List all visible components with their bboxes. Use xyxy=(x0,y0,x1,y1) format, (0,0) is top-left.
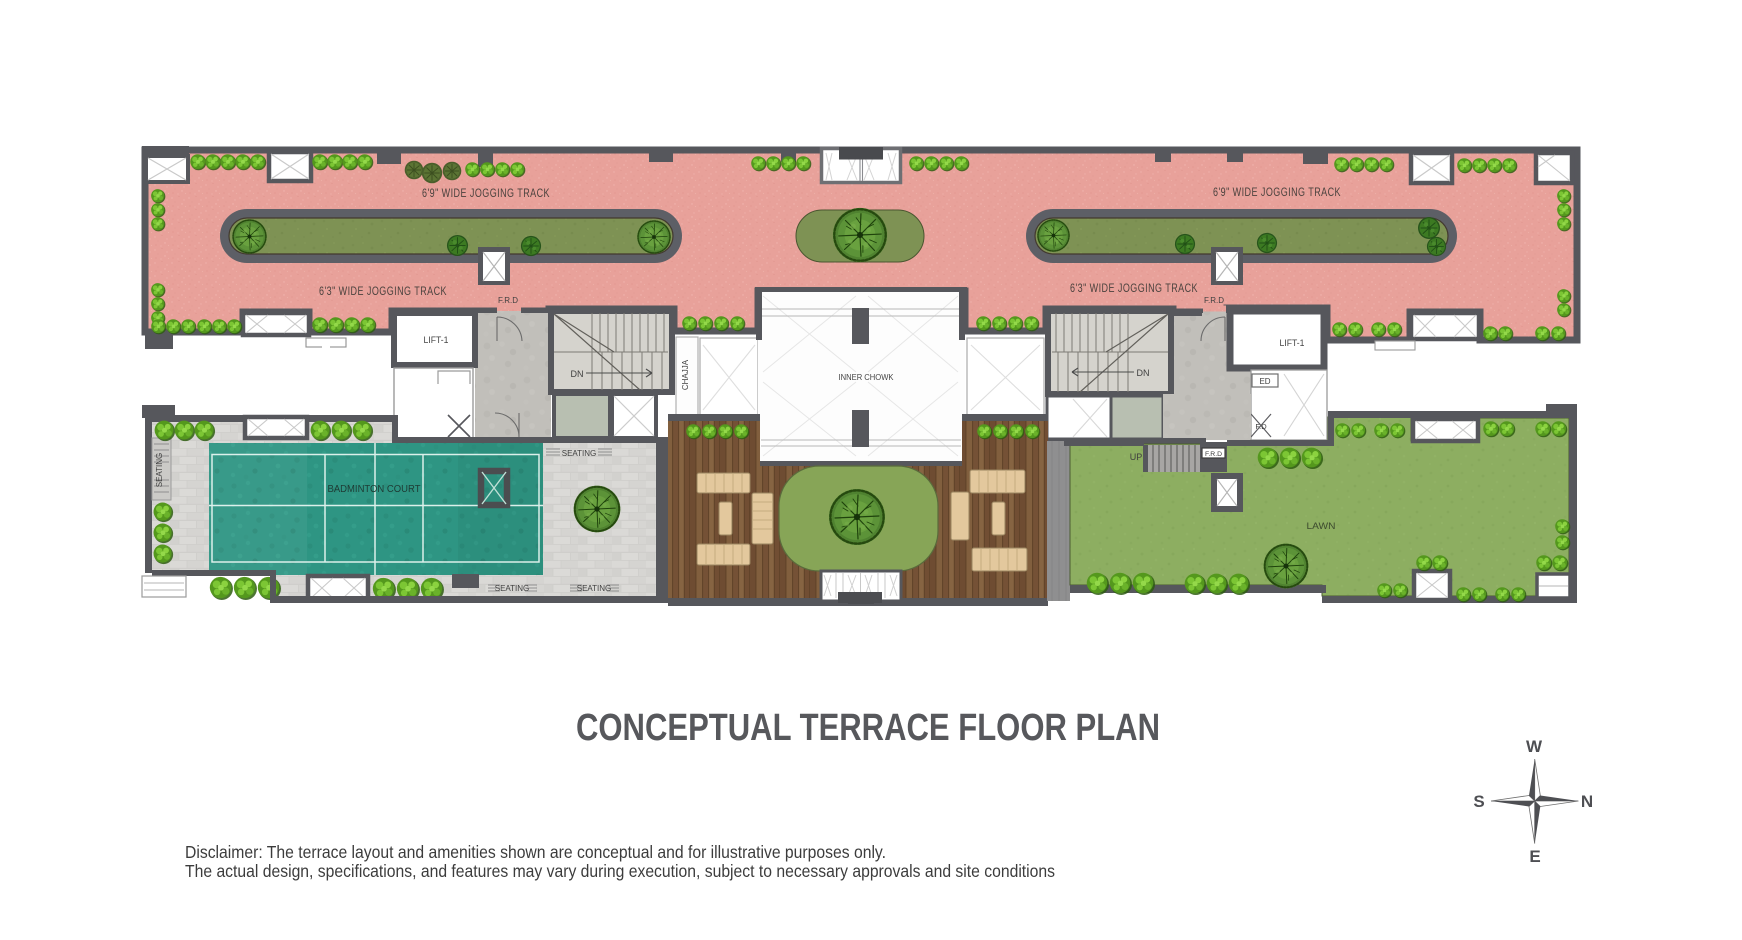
svg-text:ED: ED xyxy=(1259,377,1270,386)
svg-text:LIFT-1: LIFT-1 xyxy=(1280,338,1305,348)
svg-text:UP: UP xyxy=(1130,452,1143,462)
svg-text:Disclaimer: The terrace layout: Disclaimer: The terrace layout and ameni… xyxy=(185,842,886,862)
svg-text:6'9" WIDE JOGGING TRACK: 6'9" WIDE JOGGING TRACK xyxy=(422,186,550,200)
svg-text:SEATING: SEATING xyxy=(562,449,597,458)
svg-text:N: N xyxy=(1581,792,1593,811)
svg-text:F.R.D: F.R.D xyxy=(498,296,518,305)
svg-text:BADMINTON COURT: BADMINTON COURT xyxy=(328,484,421,495)
svg-text:SEATING: SEATING xyxy=(495,584,530,593)
svg-text:CHAJJA: CHAJJA xyxy=(681,359,690,390)
svg-text:CONCEPTUAL TERRACE FLOOR PLAN: CONCEPTUAL TERRACE FLOOR PLAN xyxy=(576,707,1160,749)
svg-text:SEATING: SEATING xyxy=(155,453,164,488)
svg-text:S: S xyxy=(1473,792,1484,811)
svg-text:SEATING: SEATING xyxy=(577,584,612,593)
svg-text:DN: DN xyxy=(571,369,584,379)
svg-text:6'9" WIDE JOGGING TRACK: 6'9" WIDE JOGGING TRACK xyxy=(1213,185,1341,199)
svg-text:DN: DN xyxy=(1137,368,1150,378)
svg-text:E: E xyxy=(1529,847,1540,866)
svg-text:F.R.D: F.R.D xyxy=(1204,296,1224,305)
svg-text:LIFT-1: LIFT-1 xyxy=(424,335,449,345)
svg-text:W: W xyxy=(1526,737,1543,756)
svg-text:INNER CHOWK: INNER CHOWK xyxy=(839,372,894,382)
svg-text:F.D: F.D xyxy=(1255,422,1267,431)
svg-text:LAWN: LAWN xyxy=(1307,521,1336,532)
svg-text:6'3" WIDE JOGGING TRACK: 6'3" WIDE JOGGING TRACK xyxy=(1070,281,1198,295)
svg-text:F.R.D: F.R.D xyxy=(1205,451,1222,458)
svg-text:The actual design, specificati: The actual design, specifications, and f… xyxy=(185,861,1055,881)
svg-text:6'3" WIDE JOGGING TRACK: 6'3" WIDE JOGGING TRACK xyxy=(319,284,447,298)
